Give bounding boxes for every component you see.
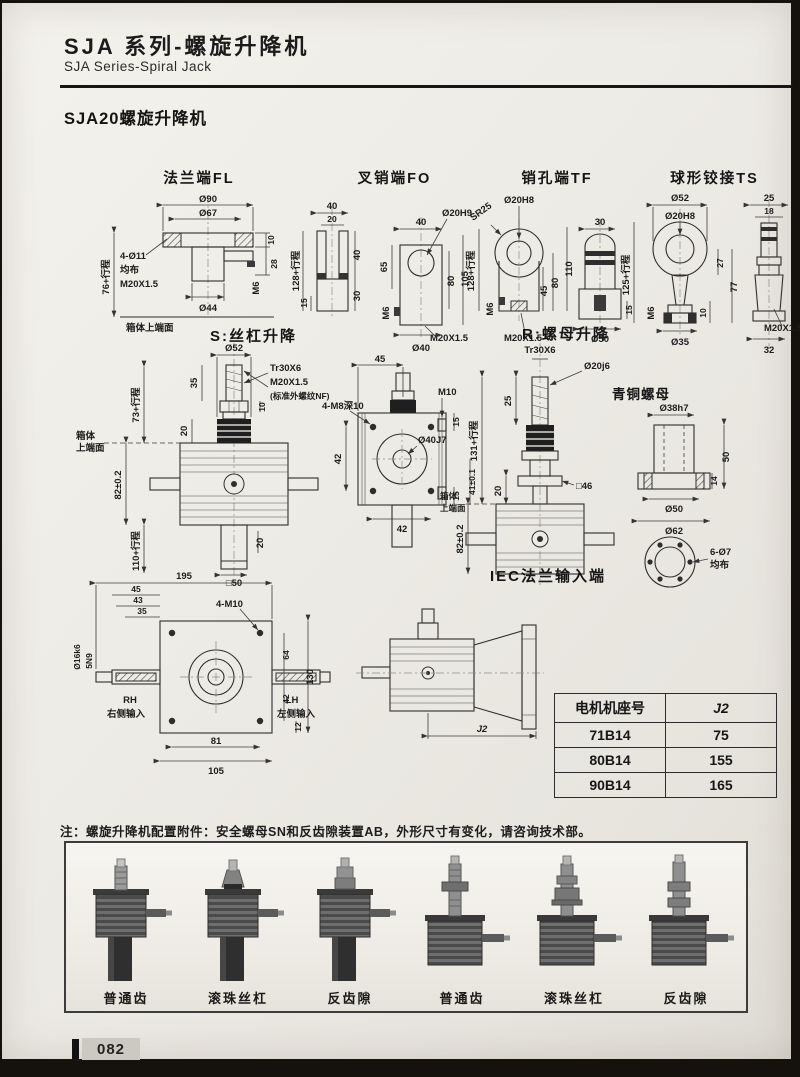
photo-background: SJA 系列-螺旋升降机 SJA Series-Spiral Jack SJA2… — [0, 0, 800, 1077]
jack-photo-ball-screw-travelling — [524, 854, 624, 986]
table-row: 80B14 155 — [555, 748, 777, 773]
dim-label: 128+行程 — [290, 250, 302, 291]
dim-label: 73+行程 — [130, 387, 142, 423]
dim-label: 40 — [327, 201, 338, 212]
dim-label: 20 — [179, 426, 190, 437]
face-label: 上端面 — [76, 442, 105, 454]
dim-label: Tr30X6 — [270, 363, 301, 374]
dim-label: 80 — [550, 278, 561, 289]
dim-label: 20 — [493, 486, 504, 497]
dim-label: 110 — [564, 261, 575, 276]
drawing-title: 叉销端FO — [297, 167, 492, 188]
column-header: J2 — [666, 694, 777, 723]
dim-label: Ø35 — [671, 337, 690, 348]
dim-label: 50 — [721, 452, 732, 463]
table-cell: 165 — [666, 773, 777, 798]
dim-label: Ø50 — [665, 504, 683, 515]
dim-label: 40 — [416, 217, 427, 228]
dim-label: 65 — [379, 261, 390, 272]
nut-lift-front-view: Tr30X6 Ø20j6 25 20 □46 箱体 上端面 1 — [438, 337, 623, 589]
dim-label: M6 — [485, 302, 496, 315]
product-photo: 普通齿 — [410, 854, 514, 1007]
section-title: SJA20螺旋升降机 — [64, 105, 207, 129]
jack-photo-anti-backlash-travelling — [636, 854, 736, 986]
dim-label: 25 — [503, 395, 514, 406]
column-header: 电机机座号 — [555, 694, 666, 723]
dim-label: 14 — [709, 476, 719, 486]
dim-label: Ø20H8 — [665, 211, 695, 222]
dim-label: 45 — [539, 285, 550, 296]
product-label: 滚珠丝杠 — [544, 988, 604, 1007]
dim-label: 125+行程 — [620, 254, 632, 295]
dim-label: 77 — [729, 282, 740, 293]
dim-label: 18 — [764, 206, 774, 216]
table-cell: 90B14 — [555, 773, 666, 798]
jack-photo-normal-gear-travelling — [412, 854, 512, 986]
dim-label: 均布 — [120, 264, 140, 276]
dim-label: 131+行程 — [468, 420, 480, 461]
dim-label: RH — [123, 695, 137, 706]
dim-label: M6 — [381, 306, 392, 319]
dim-label: 82±0.2 — [113, 471, 124, 500]
dim-label: 35 — [137, 606, 147, 616]
dim-label: 128+行程 — [465, 250, 477, 291]
dim-label: 28 — [269, 259, 279, 269]
dim-label: Ø67 — [199, 208, 217, 219]
dim-label: M20X1.5 — [120, 279, 159, 290]
dim-label: 42 — [397, 524, 408, 535]
ball-joint-drawing: Ø52 Ø20H8 27 77 10 M6 Ø35 125+行程 25 18 M… — [622, 189, 800, 361]
dim-label: SR25 — [468, 200, 494, 223]
dim-label: 43 — [133, 595, 143, 605]
drawing-ball-joint-end: 球形铰接TS Ø52 Ø20H8 27 77 10 M6 Ø35 125+行程 … — [622, 167, 800, 366]
dim-label: 10 — [698, 308, 708, 318]
face-label: 箱体上端面 — [125, 322, 174, 334]
dim-label: 45 — [131, 584, 141, 594]
footnote: 注：螺旋升降机配置附件：安全螺母SN和反齿隙装置AB，外形尺寸有变化，请咨询技术… — [60, 821, 760, 840]
dim-label: 35 — [189, 377, 200, 388]
product-photo: 反齿隙 — [634, 854, 738, 1007]
dim-label: 30 — [595, 217, 606, 228]
table-cell: 75 — [666, 723, 777, 748]
dim-label: 42 — [281, 694, 291, 704]
drawing-title: 法兰端FL — [104, 167, 294, 188]
dim-label: M20X1.5 — [270, 377, 309, 388]
product-label: 反齿隙 — [327, 988, 372, 1007]
dim-label: 130 — [305, 669, 316, 685]
page-title: SJA 系列-螺旋升降机 — [64, 29, 309, 61]
dim-label: 10 — [266, 235, 276, 245]
table-header-row: 电机机座号 J2 — [555, 694, 777, 723]
product-photo: 普通齿 — [74, 854, 178, 1007]
gearbox-top-view: 195 45 43 35 Ø16k6 5N9 4-M10 RH 右侧输入 LH … — [68, 569, 333, 781]
jack-photo-ball-screw — [188, 854, 288, 986]
product-photo-strip: 普通齿 滚珠丝杠 — [64, 841, 748, 1013]
face-label: 箱体 — [75, 430, 96, 442]
face-label: 箱体 — [439, 491, 458, 501]
product-photo: 反齿隙 — [298, 854, 402, 1007]
dim-label: Ø52 — [225, 343, 243, 354]
table-cell: 155 — [666, 748, 777, 773]
dim-label: M20X1.5 — [764, 323, 800, 334]
product-photo: 滚珠丝杠 — [186, 854, 290, 1007]
dim-label: M6 — [646, 306, 657, 319]
dim-label: 82±0.2 — [455, 525, 466, 554]
drawing-title: 球形铰接TS — [622, 167, 800, 188]
fork-end-drawing: 40 20 40 30 15 128+行程 40 Ø20H9 65 M6 80 … — [297, 189, 492, 359]
bronze-nut-drawing: Ø38h7 50 14 Ø50 Ø62 6-Ø7 均布 — [608, 399, 758, 591]
dim-label: 4-M8深10 — [322, 400, 364, 412]
dim-label: J2 — [477, 724, 488, 735]
dim-label: 105 — [208, 766, 225, 777]
table-row: 71B14 75 — [555, 723, 777, 748]
dim-label: 76+行程 — [100, 259, 112, 295]
dim-label: 45 — [375, 354, 386, 365]
page-subtitle: SJA Series-Spiral Jack — [64, 59, 212, 74]
dim-label: 6-Ø7 — [710, 547, 731, 558]
table-cell: 71B14 — [555, 723, 666, 748]
dim-label: Ø90 — [199, 194, 217, 205]
dim-label: Ø16k6 — [72, 644, 82, 670]
dim-label: 20 — [327, 214, 337, 224]
dim-label: 40 — [352, 250, 363, 261]
product-label: 反齿隙 — [663, 988, 708, 1007]
dim-label: Ø62 — [665, 526, 683, 537]
dim-label: □46 — [576, 481, 592, 492]
product-label: 普通齿 — [439, 988, 484, 1007]
dim-label: M6 — [251, 281, 262, 294]
dim-label: 110+行程 — [130, 531, 142, 571]
face-label: 上端面 — [440, 503, 466, 513]
dim-label: 左侧输入 — [276, 708, 316, 720]
dim-label: 32 — [764, 345, 775, 356]
dim-label: 4-M10 — [216, 599, 243, 610]
dim-label: Ø52 — [671, 193, 689, 204]
dim-label: 30 — [352, 291, 363, 302]
dim-label: Ø20H8 — [504, 195, 534, 206]
jack-photo-anti-backlash — [300, 854, 400, 986]
iec-flange-drawing: J2 — [354, 581, 569, 751]
header-rule — [60, 85, 793, 88]
dim-label: 20 — [255, 538, 266, 549]
dim-label: 25 — [764, 193, 775, 204]
dim-label: Ø20j6 — [584, 361, 610, 372]
dim-label: Tr30X6 — [524, 345, 555, 356]
drawing-title: 销孔端TF — [467, 167, 647, 188]
dim-label: 4-Ø11 — [120, 251, 147, 262]
dim-label: 81 — [211, 736, 222, 747]
screw-lift-front-view: 箱体 上端面 73+行程 82±0.2 110+行程 Ø52 Tr30X6 — [74, 339, 319, 587]
catalog-page: SJA 系列-螺旋升降机 SJA Series-Spiral Jack SJA2… — [2, 3, 791, 1059]
product-label: 滚珠丝杠 — [208, 988, 268, 1007]
dim-label: Ø38h7 — [659, 403, 688, 414]
page-number: 082 — [82, 1038, 140, 1060]
dim-label: 12 — [293, 722, 303, 732]
dim-label: 15 — [299, 298, 309, 308]
dim-label: 5N9 — [84, 653, 94, 669]
dim-label: 80 — [446, 276, 457, 287]
dim-label: 右侧输入 — [106, 708, 146, 720]
dim-label: 27 — [715, 258, 725, 268]
dim-label: 195 — [176, 571, 193, 582]
product-label: 普通齿 — [103, 988, 148, 1007]
dim-label: 均布 — [710, 559, 730, 571]
dim-label: 42 — [333, 454, 344, 465]
drawing-fork-end: 叉销端FO 40 20 40 30 15 128+行程 40 Ø20H9 65 … — [297, 167, 492, 364]
page-number-tick — [72, 1039, 79, 1059]
dim-label: Ø44 — [199, 303, 218, 314]
motor-frame-table: 电机机座号 J2 71B14 75 80B14 155 90B14 165 — [554, 693, 777, 798]
dim-label: 10 — [257, 402, 267, 412]
product-photo: 滚珠丝杠 — [522, 854, 626, 1007]
table-cell: 80B14 — [555, 748, 666, 773]
dim-label: 64 — [281, 650, 291, 660]
jack-photo-normal-gear — [76, 854, 176, 986]
table-row: 90B14 165 — [555, 773, 777, 798]
